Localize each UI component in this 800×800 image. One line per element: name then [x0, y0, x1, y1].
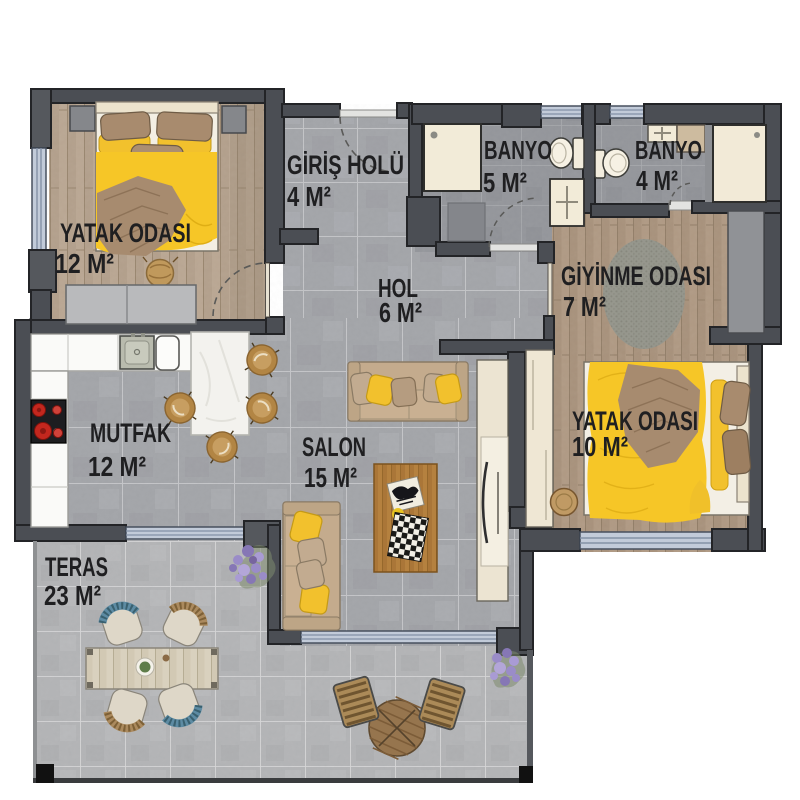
svg-text:YATAK ODASI: YATAK ODASI — [60, 218, 191, 248]
svg-text:12 M²: 12 M² — [55, 248, 114, 279]
svg-text:4 M²: 4 M² — [287, 181, 331, 212]
svg-text:5 M²: 5 M² — [483, 167, 527, 198]
svg-text:4 M²: 4 M² — [636, 165, 678, 196]
svg-text:GİRİŞ HOLÜ: GİRİŞ HOLÜ — [287, 150, 404, 180]
svg-text:GİYİNME ODASI: GİYİNME ODASI — [561, 261, 711, 291]
svg-text:23 M²: 23 M² — [44, 580, 101, 611]
svg-text:BANYO: BANYO — [635, 135, 702, 165]
svg-text:12 M²: 12 M² — [88, 451, 146, 482]
svg-text:MUTFAK: MUTFAK — [90, 418, 171, 448]
svg-text:BANYO: BANYO — [484, 135, 552, 165]
svg-text:15 M²: 15 M² — [304, 462, 357, 493]
svg-text:6 M²: 6 M² — [379, 297, 422, 328]
svg-text:7 M²: 7 M² — [563, 291, 606, 322]
svg-text:10 M²: 10 M² — [572, 431, 628, 462]
svg-text:TERAS: TERAS — [45, 552, 108, 582]
svg-text:SALON: SALON — [302, 432, 366, 462]
